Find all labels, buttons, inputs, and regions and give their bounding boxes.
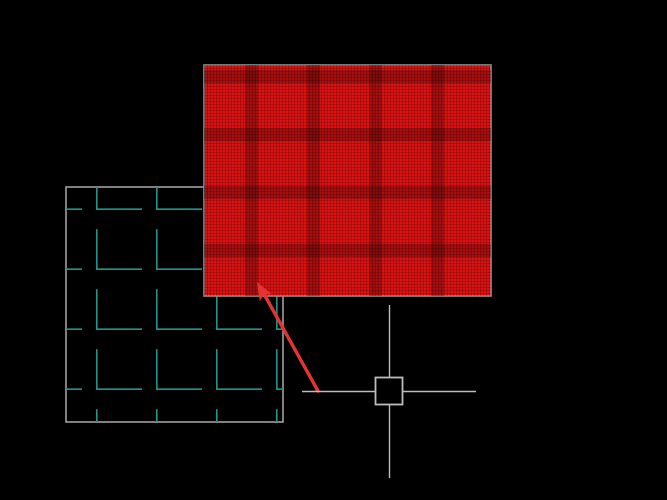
cad-scene: [0, 0, 667, 500]
drawing-canvas[interactable]: [0, 0, 667, 500]
hatched-rectangle-entity[interactable]: [204, 65, 491, 296]
hatched-rectangle-hbands: [204, 65, 491, 296]
pickbox: [376, 378, 403, 405]
